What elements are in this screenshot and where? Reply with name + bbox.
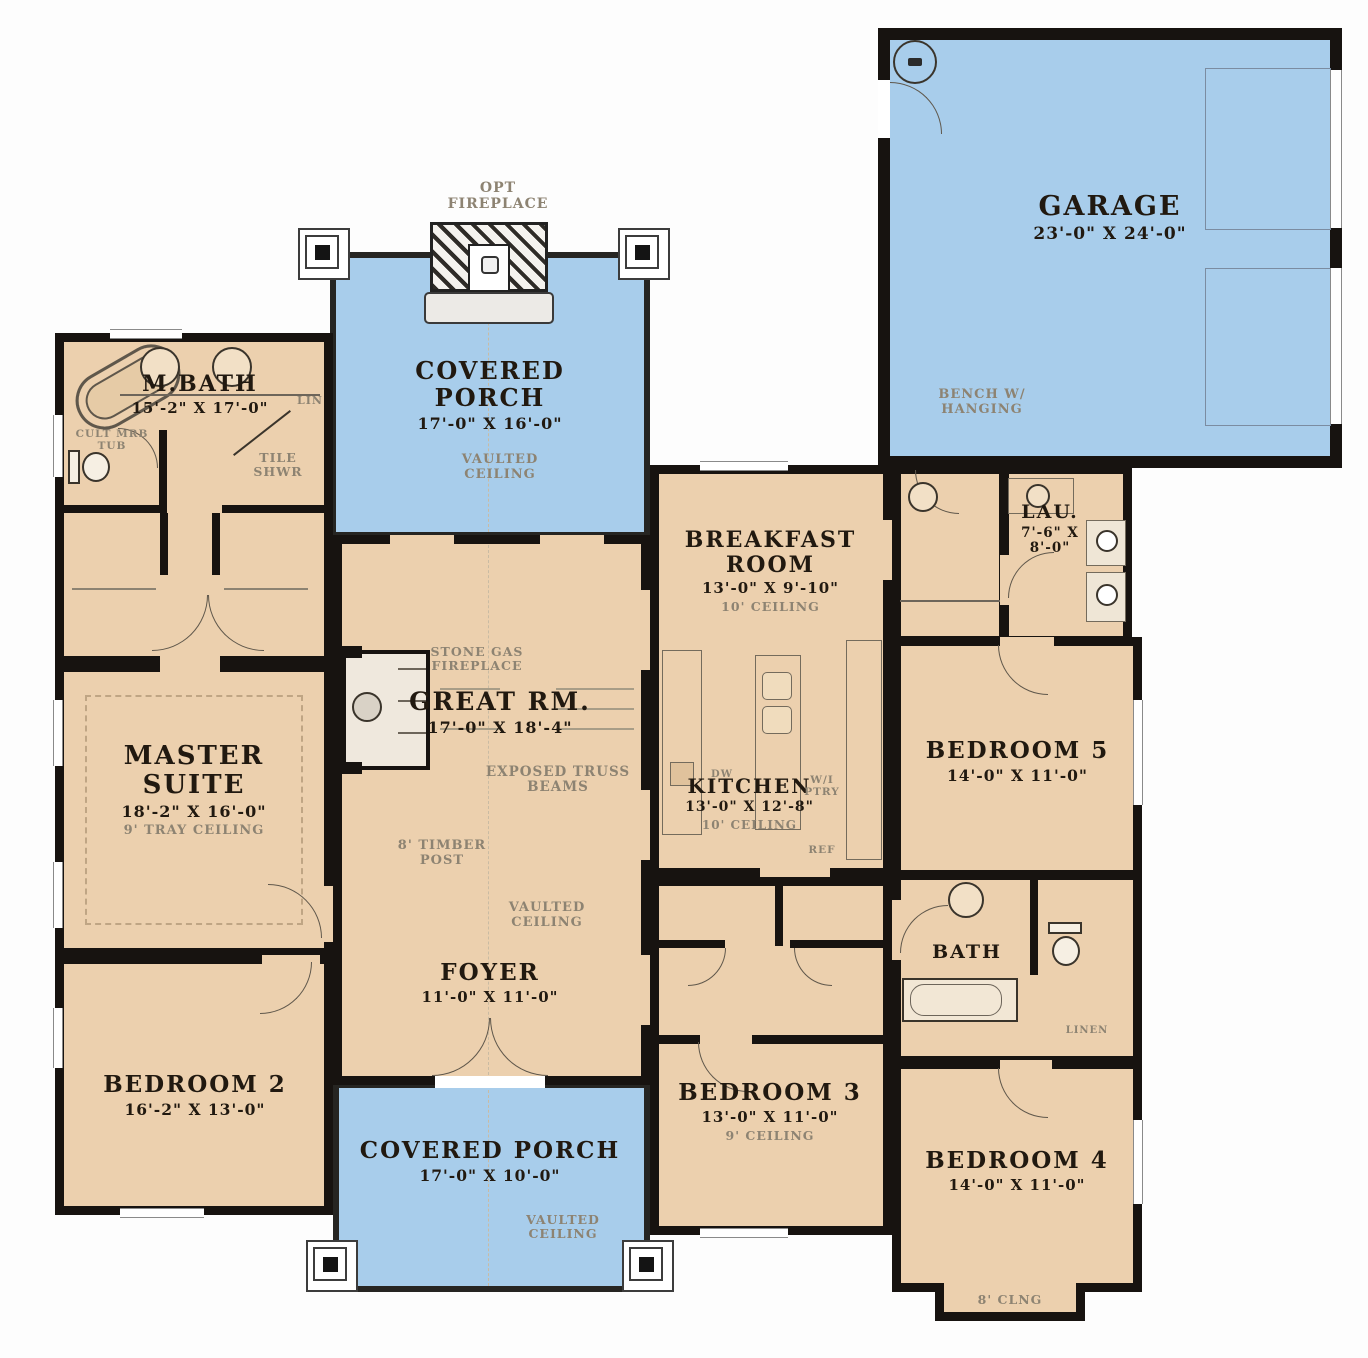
opt-fireplace-note: OPT FIREPLACE <box>428 181 568 212</box>
room-dims: 17'-0" X 10'-0" <box>355 1167 625 1184</box>
breakfast-label: BREAKFAST ROOM 13'-0" X 9'-10" 10' CEILI… <box>668 528 873 614</box>
porch-column <box>306 1240 358 1292</box>
great-room-label: GREAT RM. 17'-0" X 18'-4" <box>390 688 610 737</box>
room-dims: 18'-2" X 16'-0" <box>108 803 280 821</box>
opening <box>540 535 604 544</box>
garage-label: GARAGE 23'-0" X 24'-0" <box>950 192 1270 244</box>
interior-wall <box>222 505 333 513</box>
garage-entry-gap <box>878 80 890 138</box>
room-name: BEDROOM 3 <box>665 1080 875 1106</box>
interior-wall <box>159 430 167 513</box>
room-ceiling: 10' CEILING <box>662 819 837 832</box>
garage-door-opening <box>1330 268 1342 424</box>
toilet-master <box>68 450 80 484</box>
room-dims: 23'-0" X 24'-0" <box>950 225 1270 244</box>
bedroom5-label: BEDROOM 5 14'-0" X 11'-0" <box>910 738 1125 784</box>
bedroom4-label: BEDROOM 4 14'-0" X 11'-0" <box>912 1148 1122 1194</box>
interior-wall <box>1030 880 1038 975</box>
cooktop-basin <box>762 706 792 734</box>
window <box>120 1208 204 1218</box>
window <box>53 1008 63 1068</box>
room-dims: 17'-0" X 18'-4" <box>390 719 610 737</box>
opening <box>641 790 650 860</box>
room-dims: 11'-0" X 11'-0" <box>395 989 585 1006</box>
room-name: MASTER SUITE <box>108 742 280 800</box>
opening <box>390 535 454 544</box>
window <box>1133 1120 1143 1204</box>
dw-note: DW <box>706 769 738 780</box>
porch-top-ceiling-note: VAULTED CEILING <box>445 453 555 482</box>
fireplace-insert <box>481 256 499 274</box>
window <box>1133 700 1143 805</box>
bedroom2-label: BEDROOM 2 16'-2" X 13'-0" <box>85 1072 305 1118</box>
opening <box>760 868 830 877</box>
room-name: FOYER <box>395 960 585 986</box>
garage-door-opening <box>1330 70 1342 228</box>
stone-fireplace-note: STONE GAS FIREPLACE <box>402 645 552 673</box>
toilet-bath-bowl <box>1052 936 1080 966</box>
ref-note: REF <box>802 845 842 857</box>
porch-bottom-label: COVERED PORCH 17'-0" X 10'-0" <box>355 1138 625 1184</box>
mud-sink <box>908 482 938 512</box>
room-dims: 13'-0" X 11'-0" <box>665 1109 875 1126</box>
bedroom3-label: BEDROOM 3 13'-0" X 11'-0" 9' CEILING <box>665 1080 875 1143</box>
room-name: COVERED PORCH <box>402 358 578 412</box>
room-dims: 15'-2" X 17'-0" <box>100 400 300 417</box>
interior-wall <box>659 940 725 948</box>
ridge-line <box>488 1090 489 1286</box>
laundry-label: LAU. 7'-6" X 8'-0" <box>1000 502 1100 556</box>
porch-bottom-ceiling-note: VAULTED CEILING <box>508 1213 618 1241</box>
opening <box>324 886 333 942</box>
room-name: BEDROOM 4 <box>912 1148 1122 1174</box>
room-name: GARAGE <box>950 192 1270 222</box>
toilet-bath <box>1048 922 1082 934</box>
closet-rod <box>224 588 308 590</box>
room-name: GREAT RM. <box>390 688 610 716</box>
great-vaulted-note: VAULTED CEILING <box>492 901 602 930</box>
room-dims: 13'-0" X 9'-10" <box>668 580 873 597</box>
window <box>53 700 63 766</box>
porch-column <box>618 228 670 280</box>
room-dims: 17'-0" X 16'-0" <box>402 415 578 433</box>
bath-tub-inner <box>910 984 1002 1016</box>
room-name: BREAKFAST ROOM <box>668 528 873 577</box>
room-ceiling: 9' CEILING <box>665 1129 875 1143</box>
opening <box>641 590 650 670</box>
closet-rod <box>72 588 156 590</box>
tub-note: CULT MRB TUB <box>72 429 152 453</box>
interior-wall <box>790 940 884 948</box>
covered-porch-bottom <box>333 1082 650 1292</box>
interior-wall <box>212 513 220 575</box>
foyer-label: FOYER 11'-0" X 11'-0" <box>395 960 585 1006</box>
interior-wall <box>64 505 159 513</box>
linen-note-bath: LINEN <box>1052 1025 1122 1036</box>
linen-note-mbath: LIN <box>292 395 328 407</box>
room-dims: 7'-6" X 8'-0" <box>1000 526 1100 556</box>
truss-note: EXPOSED TRUSS BEAMS <box>478 765 638 795</box>
interior-wall <box>160 513 168 575</box>
garage-door-swing-dot <box>908 58 922 66</box>
cooktop-basin <box>762 672 792 700</box>
bedroom4-ceiling-note: 8' CLNG <box>955 1293 1065 1307</box>
room-name: COVERED PORCH <box>355 1138 625 1164</box>
dryer-drum <box>1096 584 1118 606</box>
master-suite-label: MASTER SUITE 18'-2" X 16'-0" 9' TRAY CEI… <box>108 742 280 839</box>
room-dims: 14'-0" X 11'-0" <box>912 1177 1122 1194</box>
porch-column <box>622 1240 674 1292</box>
mbath-label: M.BATH 15'-2" X 17'-0" <box>100 372 300 416</box>
porch-top-label: COVERED PORCH 17'-0" X 16'-0" <box>402 358 578 433</box>
window <box>53 862 63 928</box>
toilet-master-bowl <box>82 452 110 482</box>
room-dims: 13'-0" X 12'-8" <box>662 800 837 816</box>
front-door-gap <box>435 1076 545 1088</box>
porch-column <box>298 228 350 280</box>
window <box>700 1228 788 1238</box>
opening <box>883 520 892 580</box>
kitchen-pantry-cabinet <box>846 640 882 860</box>
fireplace-log-set <box>352 692 382 722</box>
room-dims: 16'-2" X 13'-0" <box>85 1101 305 1118</box>
window <box>110 329 182 339</box>
opening <box>160 656 220 672</box>
bedroom3-hall-room <box>650 877 892 1044</box>
timber-post-note: 8' TIMBER POST <box>392 839 492 868</box>
opening <box>641 955 650 1025</box>
room-ceiling: 9' TRAY CEILING <box>108 824 280 839</box>
pantry-note: W/I PTRY <box>800 775 844 799</box>
fireplace-stone-hearth <box>424 292 554 324</box>
room-name: LAU. <box>1000 502 1100 523</box>
bath-sink <box>948 882 984 918</box>
window <box>53 415 63 477</box>
room-name: M.BATH <box>100 372 300 397</box>
mud-bench-line <box>900 600 1000 602</box>
room-ceiling: 10' CEILING <box>668 600 873 614</box>
room-name: BEDROOM 2 <box>85 1072 305 1098</box>
fireplace-jamb <box>342 646 362 658</box>
window <box>700 461 788 471</box>
garage-bench-note: BENCH W/ HANGING <box>922 388 1042 417</box>
room-name: BEDROOM 5 <box>910 738 1125 764</box>
floor-plan: GARAGE 23'-0" X 24'-0" BENCH W/ HANGING … <box>0 0 1368 1358</box>
garage-door-panel <box>1205 268 1331 426</box>
shower-note: TILE SHWR <box>238 451 318 479</box>
bath-label: BATH <box>912 942 1022 963</box>
room-dims: 14'-0" X 11'-0" <box>910 767 1125 784</box>
interior-wall <box>775 886 783 946</box>
fireplace-jamb <box>342 762 362 774</box>
